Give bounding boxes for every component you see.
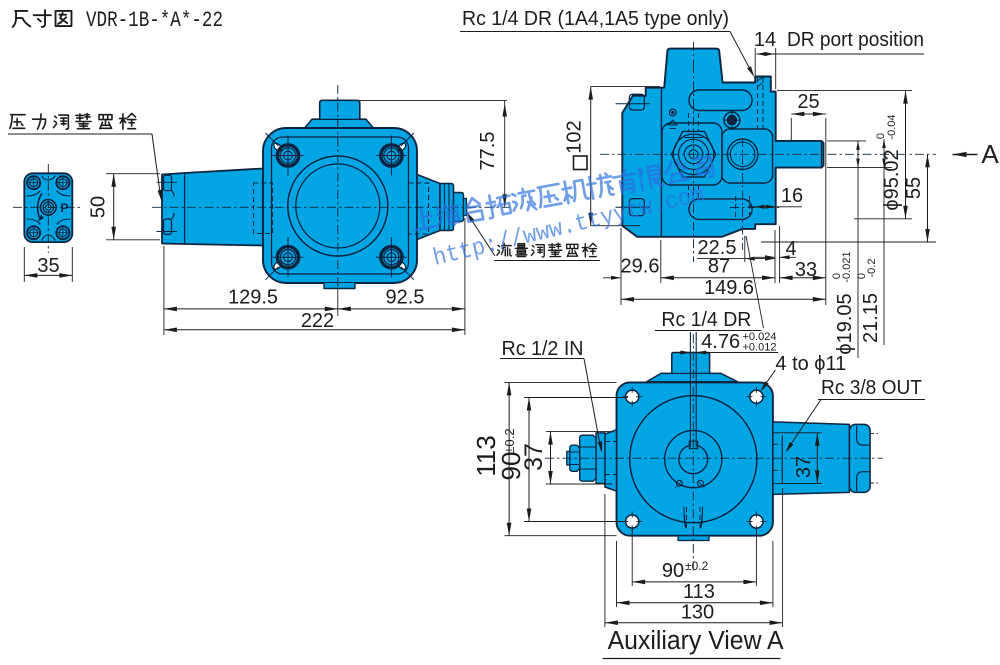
svg-text:-0.021: -0.021 (841, 251, 853, 282)
svg-text:77.5: 77.5 (477, 132, 499, 171)
svg-text:25: 25 (797, 91, 819, 113)
svg-text:4: 4 (785, 238, 796, 260)
svg-text:50: 50 (88, 196, 110, 218)
svg-text:DR port position: DR port position (787, 29, 924, 51)
svg-text:35: 35 (37, 255, 59, 277)
svg-text:29.6: 29.6 (621, 256, 660, 278)
svg-text:55: 55 (903, 177, 925, 199)
svg-text:A: A (981, 139, 999, 169)
svg-text:Rc 1/4 DR (1A4,1A5 type only): Rc 1/4 DR (1A4,1A5 type only) (462, 8, 729, 30)
svg-text:21.15: 21.15 (860, 293, 882, 343)
svg-text:ϕ19.05: ϕ19.05 (834, 293, 856, 354)
svg-text:±0.2: ±0.2 (685, 559, 709, 573)
svg-text:+0.012: +0.012 (743, 342, 777, 354)
svg-text:P: P (60, 201, 68, 215)
svg-text:37: 37 (520, 443, 548, 471)
svg-text:Rc 3/8 OUT: Rc 3/8 OUT (821, 377, 922, 399)
svg-text:37: 37 (793, 456, 815, 478)
svg-text:222: 222 (301, 310, 334, 332)
svg-text:Rc 1/4 DR: Rc 1/4 DR (661, 309, 751, 331)
svg-text:130: 130 (681, 602, 714, 624)
svg-text:129.5: 129.5 (228, 287, 278, 309)
svg-text:±0.2: ±0.2 (502, 428, 517, 453)
svg-text:Auxiliary View A: Auxiliary View A (608, 627, 784, 655)
svg-text:113: 113 (683, 581, 715, 603)
svg-text:87: 87 (708, 256, 730, 278)
svg-text:102: 102 (564, 120, 586, 153)
svg-text:90: 90 (662, 560, 684, 582)
svg-text:92.5: 92.5 (386, 287, 425, 309)
svg-text:VDR-1B-*A*-22: VDR-1B-*A*-22 (86, 8, 223, 33)
svg-text:149.6: 149.6 (704, 277, 754, 299)
svg-text:14: 14 (754, 29, 776, 51)
svg-text:-0.04: -0.04 (886, 114, 898, 139)
svg-text:-0.2: -0.2 (866, 259, 878, 278)
svg-text:4 to ϕ11: 4 to ϕ11 (775, 353, 846, 375)
svg-text:33: 33 (795, 259, 817, 281)
svg-text:Rc 1/2 IN: Rc 1/2 IN (502, 338, 584, 360)
svg-text:16: 16 (781, 185, 803, 207)
svg-text:4.76: 4.76 (701, 331, 740, 353)
